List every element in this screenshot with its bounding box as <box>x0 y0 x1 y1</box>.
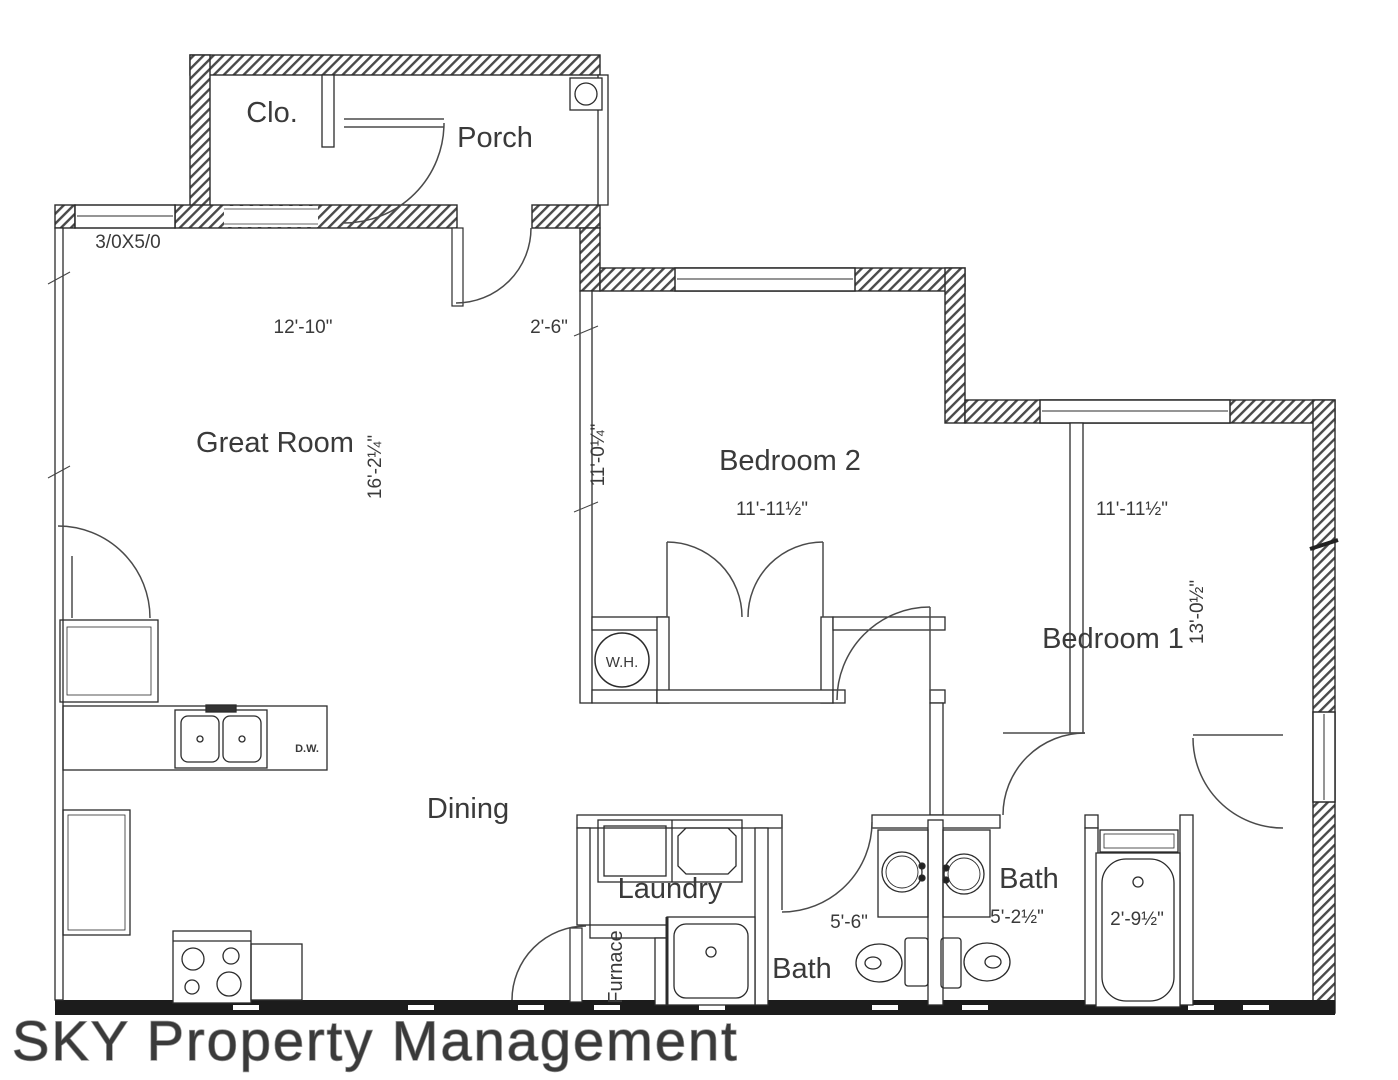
bath2-toilet <box>941 938 1010 988</box>
sink-faucet <box>206 705 236 712</box>
dishwasher-label: D.W. <box>295 743 319 755</box>
bath1-door <box>782 820 872 912</box>
bedroom2-window <box>675 268 855 291</box>
furnace-top-wall <box>590 925 668 938</box>
dryer <box>678 828 736 874</box>
bath1-sink <box>882 852 922 892</box>
great-room-window <box>75 205 175 228</box>
dim-tub-width: 2'-9½" <box>1110 909 1164 930</box>
bedroom1-door <box>1003 733 1085 815</box>
tubroom-top-left-stub <box>1085 815 1098 828</box>
laundry-bath1-divider-wall <box>755 828 768 1005</box>
room-label-great-room: Great Room <box>196 427 354 459</box>
dim-bath2-width: 5'-2½" <box>990 907 1044 928</box>
right-exterior-wall <box>1313 400 1335 1013</box>
dim-bedroom1-depth: 13'-0½" <box>1187 580 1208 644</box>
bedroom1-bath-door <box>1193 735 1283 828</box>
floor-plan-page: Clo. Porch 3/0X5/0 12'-10" 2'-6" Great R… <box>0 0 1398 1080</box>
room-label-laundry: Laundry <box>618 873 723 905</box>
bedroom2-closet-bottom-wall <box>657 690 833 703</box>
kitchen-base-cabinet <box>63 810 130 935</box>
front-door <box>452 228 531 306</box>
clo-right-wall <box>322 75 334 147</box>
dim-bedroom2-width: 11'-11½" <box>736 499 808 520</box>
wh-nook-top-wall <box>592 617 667 630</box>
bedroom1-side-window <box>1313 712 1335 802</box>
dim-great-room-width: 12'-10" <box>274 317 333 338</box>
bedroom1-west-wall <box>1070 423 1083 733</box>
room-label-bedroom2: Bedroom 2 <box>719 445 861 477</box>
bathtub <box>1096 853 1180 1007</box>
room-label-closet: Clo. <box>246 97 298 129</box>
coat-closet-door <box>58 526 150 618</box>
water-heater-label: W.H. <box>606 654 639 671</box>
step-wall-bedroom2-bedroom1 <box>945 268 965 423</box>
porch-top-wall <box>190 55 600 75</box>
stove-side-counter <box>251 944 302 1000</box>
dim-bedroom2-depth: 11'-0¼" <box>588 424 609 487</box>
bedroom2-bottom-wall <box>833 617 945 630</box>
washer <box>604 826 666 876</box>
left-exterior-wall <box>48 228 70 1000</box>
dim-front-door: 2'-6" <box>530 317 568 338</box>
room-label-bath1: Bath <box>772 953 832 985</box>
shower <box>667 917 755 1005</box>
coat-closet <box>60 620 158 702</box>
bedroom2-door-right-jamb <box>930 690 945 703</box>
floor-plan-drawing: Clo. Porch 3/0X5/0 12'-10" 2'-6" Great R… <box>0 0 1398 1080</box>
hall-west-wall <box>930 703 943 815</box>
watermark-text: SKY Property Management <box>12 1009 739 1072</box>
wh-nook-bottom-wall <box>592 690 657 703</box>
tubroom-right-wall <box>1180 815 1193 1005</box>
bath2-sink <box>944 854 984 894</box>
room-label-dining: Dining <box>427 793 509 825</box>
window-schedule-label: 3/0X5/0 <box>95 232 161 253</box>
bath2-vanity <box>943 830 990 917</box>
step-wall-porch-bedroom2 <box>580 228 600 291</box>
laundry-west-wall <box>577 828 590 925</box>
bath1-vanity <box>878 830 928 917</box>
bedroom2-door-left-jamb <box>833 690 845 703</box>
room-label-porch: Porch <box>457 122 533 154</box>
closet-cased-opening <box>224 206 318 227</box>
stove <box>173 931 251 1003</box>
furnace-door <box>512 926 586 1002</box>
front-wall-seg-a <box>55 205 75 228</box>
labels: Clo. Porch 3/0X5/0 12'-10" 2'-6" Great R… <box>95 97 1208 1004</box>
room-label-furnace: Furnace <box>605 930 627 1003</box>
linen-shelf <box>1100 830 1178 852</box>
bath1-toilet <box>856 938 928 986</box>
kitchen <box>63 705 327 1003</box>
porch-left-wall <box>190 55 210 225</box>
dim-bath1-width: 5'-6" <box>830 912 868 933</box>
bedroom1-window <box>1040 400 1230 423</box>
dim-bedroom1-width: 11'-11½" <box>1096 499 1168 520</box>
front-wall-seg-c <box>532 205 600 228</box>
kitchen-sink <box>175 705 267 768</box>
dim-great-room-depth: 16'-2¼" <box>365 435 386 499</box>
bedroom2-bifold-closet-doors <box>667 542 823 617</box>
room-label-bath2: Bath <box>999 863 1059 895</box>
room-label-bedroom1: Bedroom 1 <box>1042 623 1184 655</box>
bedroom2-west-wall <box>580 291 592 703</box>
